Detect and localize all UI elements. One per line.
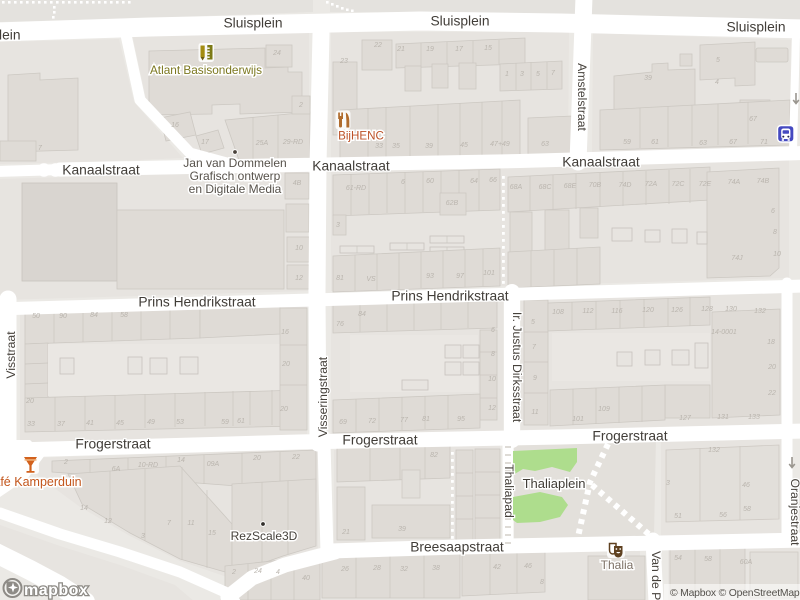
svg-text:Kanaalstraat: Kanaalstraat (62, 163, 140, 178)
svg-text:56: 56 (719, 512, 727, 519)
svg-text:20: 20 (25, 398, 34, 405)
svg-text:16: 16 (171, 122, 179, 129)
svg-text:2: 2 (63, 459, 68, 466)
svg-text:54: 54 (674, 555, 682, 562)
svg-text:Prins Hendrikstraat: Prins Hendrikstraat (138, 295, 255, 310)
svg-text:50: 50 (32, 313, 40, 320)
svg-text:3: 3 (336, 222, 340, 229)
svg-text:45: 45 (460, 142, 468, 149)
svg-text:22: 22 (767, 390, 776, 397)
svg-text:20: 20 (279, 406, 288, 413)
svg-text:39: 39 (425, 143, 433, 150)
svg-text:116: 116 (611, 308, 622, 315)
svg-text:16: 16 (281, 329, 289, 336)
svg-text:6: 6 (771, 208, 775, 215)
svg-text:72C: 72C (672, 181, 686, 188)
svg-text:74A: 74A (728, 179, 741, 186)
svg-text:39: 39 (398, 526, 406, 533)
svg-text:82: 82 (430, 452, 438, 459)
svg-text:3: 3 (666, 480, 670, 487)
svg-text:63: 63 (541, 141, 549, 148)
svg-text:Frogerstraat: Frogerstraat (342, 433, 417, 448)
svg-text:Thaliaplein: Thaliaplein (523, 476, 586, 491)
svg-text:22: 22 (373, 42, 382, 49)
svg-text:22: 22 (291, 454, 300, 461)
svg-text:23: 23 (339, 58, 348, 65)
svg-text:128: 128 (701, 306, 713, 313)
svg-text:109: 109 (598, 406, 610, 413)
svg-text:38: 38 (432, 565, 440, 572)
svg-text:10-RD: 10-RD (138, 462, 158, 469)
svg-text:14: 14 (177, 457, 185, 464)
svg-text:2: 2 (298, 102, 303, 109)
svg-text:93: 93 (426, 273, 434, 280)
svg-text:58: 58 (743, 506, 751, 513)
svg-text:29-RD: 29-RD (282, 139, 303, 146)
svg-text:74D: 74D (619, 182, 632, 189)
svg-text:11: 11 (187, 520, 194, 527)
svg-text:90: 90 (59, 313, 67, 320)
svg-text:10: 10 (295, 245, 303, 252)
svg-text:2: 2 (231, 569, 236, 576)
svg-text:69: 69 (339, 419, 347, 426)
svg-text:12: 12 (488, 405, 496, 412)
svg-text:Thalia: Thalia (601, 558, 634, 572)
svg-text:09A: 09A (207, 461, 220, 468)
svg-text:120: 120 (642, 307, 654, 314)
svg-text:126: 126 (671, 307, 683, 314)
svg-text:35: 35 (392, 143, 400, 150)
svg-text:112: 112 (582, 308, 593, 315)
svg-text:5: 5 (536, 71, 540, 78)
svg-text:108: 108 (552, 309, 564, 316)
svg-text:131: 131 (717, 414, 729, 421)
svg-text:127: 127 (679, 415, 692, 422)
svg-text:Van de Polderstraat: Van de Polderstraat (649, 551, 663, 600)
svg-text:8: 8 (491, 351, 495, 358)
svg-text:18: 18 (767, 339, 775, 346)
svg-text:77: 77 (400, 417, 409, 424)
svg-text:24: 24 (272, 50, 281, 57)
svg-text:Amstelstraat: Amstelstraat (575, 63, 589, 131)
svg-text:25A: 25A (255, 140, 269, 147)
svg-text:130: 130 (725, 306, 737, 313)
svg-text:Kanaalstraat: Kanaalstraat (562, 155, 640, 170)
svg-text:Sluisplein: Sluisplein (223, 16, 282, 31)
svg-text:5: 5 (531, 319, 535, 326)
svg-text:4B: 4B (293, 180, 302, 187)
svg-text:Sluisplein: Sluisplein (726, 20, 785, 35)
svg-text:46: 46 (742, 482, 750, 489)
svg-text:32: 32 (400, 566, 408, 573)
svg-text:10: 10 (488, 376, 496, 383)
svg-text:8: 8 (540, 579, 544, 586)
svg-text:67: 67 (749, 116, 758, 123)
svg-text:41: 41 (86, 420, 94, 427)
svg-text:Café Kamperduin: Café Kamperduin (0, 475, 82, 489)
svg-text:4: 4 (276, 569, 280, 576)
svg-text:Oranjestraat: Oranjestraat (788, 478, 800, 546)
svg-text:19: 19 (426, 46, 434, 53)
svg-text:24: 24 (253, 568, 262, 575)
svg-text:Visseringstraat: Visseringstraat (316, 356, 330, 437)
svg-text:64: 64 (470, 178, 478, 185)
svg-text:4: 4 (715, 79, 719, 86)
svg-text:59: 59 (221, 419, 229, 426)
svg-text:20: 20 (281, 361, 290, 368)
svg-text:70B: 70B (589, 182, 602, 189)
svg-text:74J: 74J (731, 255, 743, 262)
svg-text:33: 33 (27, 421, 35, 428)
svg-text:74B: 74B (757, 178, 770, 185)
svg-text:3: 3 (520, 71, 524, 78)
svg-text:132: 132 (754, 308, 766, 315)
svg-text:VS: VS (366, 276, 376, 283)
svg-text:3: 3 (141, 533, 145, 540)
svg-text:72E: 72E (699, 181, 712, 188)
svg-text:6: 6 (401, 179, 405, 186)
svg-text:58: 58 (704, 556, 712, 563)
svg-text:Visstraat: Visstraat (4, 331, 18, 379)
svg-text:101: 101 (572, 416, 584, 423)
svg-text:46: 46 (524, 563, 532, 570)
svg-text:20: 20 (252, 455, 261, 462)
svg-text:61: 61 (237, 418, 245, 425)
svg-text:76: 76 (336, 321, 344, 328)
svg-text:37: 37 (57, 421, 66, 428)
svg-text:39: 39 (644, 75, 652, 82)
svg-text:12: 12 (104, 518, 112, 525)
svg-text:81: 81 (336, 275, 344, 282)
svg-text:Ir. Justus Dirksstraat: Ir. Justus Dirksstraat (510, 312, 524, 423)
svg-text:mapbox: mapbox (24, 582, 88, 599)
svg-text:Jan van Dommelen: Jan van Dommelen (183, 156, 286, 170)
svg-text:26: 26 (340, 566, 349, 573)
svg-text:53: 53 (176, 419, 184, 426)
svg-text:81: 81 (422, 416, 430, 423)
svg-text:95: 95 (457, 416, 465, 423)
svg-text:66: 66 (489, 177, 497, 184)
svg-text:12: 12 (295, 275, 303, 282)
svg-text:51: 51 (674, 513, 682, 520)
svg-text:Thaliapad: Thaliapad (502, 464, 516, 518)
svg-text:14: 14 (80, 505, 88, 512)
svg-text:132: 132 (708, 447, 720, 454)
svg-text:RezScale3D: RezScale3D (231, 529, 298, 543)
svg-text:61-RD: 61-RD (346, 185, 366, 192)
svg-text:Breesaapstraat: Breesaapstraat (410, 540, 504, 555)
svg-text:60: 60 (426, 178, 434, 185)
svg-text:40: 40 (302, 575, 310, 582)
svg-text:72: 72 (368, 418, 376, 425)
svg-text:6A: 6A (112, 466, 121, 473)
svg-text:42: 42 (493, 564, 501, 571)
svg-text:17: 17 (201, 139, 210, 146)
svg-text:Frogerstraat: Frogerstraat (592, 429, 667, 444)
svg-text:84: 84 (90, 312, 98, 319)
svg-text:© Mapbox © OpenStreetMap: © Mapbox © OpenStreetMap (670, 588, 800, 599)
svg-text:63: 63 (699, 140, 707, 147)
svg-text:Atlant Basisonderwijs: Atlant Basisonderwijs (150, 63, 262, 77)
svg-text:9: 9 (533, 375, 537, 382)
svg-text:47+49: 47+49 (490, 141, 510, 148)
svg-text:72A: 72A (645, 181, 658, 188)
svg-text:6: 6 (491, 327, 495, 334)
svg-text:33: 33 (375, 143, 383, 150)
svg-text:67: 67 (729, 139, 738, 146)
svg-text:5: 5 (716, 57, 720, 64)
svg-text:133: 133 (748, 414, 760, 421)
svg-text:61: 61 (651, 139, 659, 146)
svg-text:Grafisch ontwerp: Grafisch ontwerp (190, 169, 281, 183)
svg-text:59: 59 (623, 139, 631, 146)
svg-text:71: 71 (760, 139, 768, 146)
svg-text:15: 15 (484, 45, 492, 52)
svg-text:15: 15 (208, 530, 216, 537)
svg-text:68A: 68A (510, 184, 523, 191)
svg-text:14-0001: 14-0001 (711, 329, 737, 336)
svg-text:20: 20 (767, 364, 776, 371)
svg-text:Frogerstraat: Frogerstraat (75, 437, 150, 452)
svg-text:21: 21 (341, 529, 350, 536)
svg-text:28: 28 (372, 565, 381, 572)
svg-text:8: 8 (773, 229, 777, 236)
svg-text:49: 49 (147, 419, 155, 426)
svg-text:21: 21 (396, 46, 405, 53)
svg-text:Prins Hendrikstraat: Prins Hendrikstraat (391, 289, 508, 304)
svg-text:45: 45 (116, 420, 124, 427)
svg-text:BijHENC: BijHENC (338, 130, 384, 143)
svg-text:Kanaalstraat: Kanaalstraat (312, 159, 390, 174)
svg-text:84: 84 (358, 311, 366, 318)
svg-text:17: 17 (455, 46, 464, 53)
svg-text:58: 58 (120, 312, 128, 319)
svg-text:Sluisplein: Sluisplein (430, 14, 489, 29)
svg-text:62B: 62B (446, 200, 459, 207)
svg-text:10: 10 (773, 251, 781, 258)
svg-text:11: 11 (531, 409, 538, 416)
svg-text:101: 101 (483, 270, 495, 277)
svg-text:60A: 60A (740, 559, 753, 566)
svg-text:Sluisplein: Sluisplein (0, 28, 21, 43)
svg-text:97: 97 (456, 273, 465, 280)
svg-text:en Digitale Media: en Digitale Media (189, 182, 282, 196)
svg-text:68C: 68C (539, 184, 553, 191)
svg-text:68E: 68E (564, 183, 577, 190)
svg-text:1: 1 (505, 71, 509, 78)
